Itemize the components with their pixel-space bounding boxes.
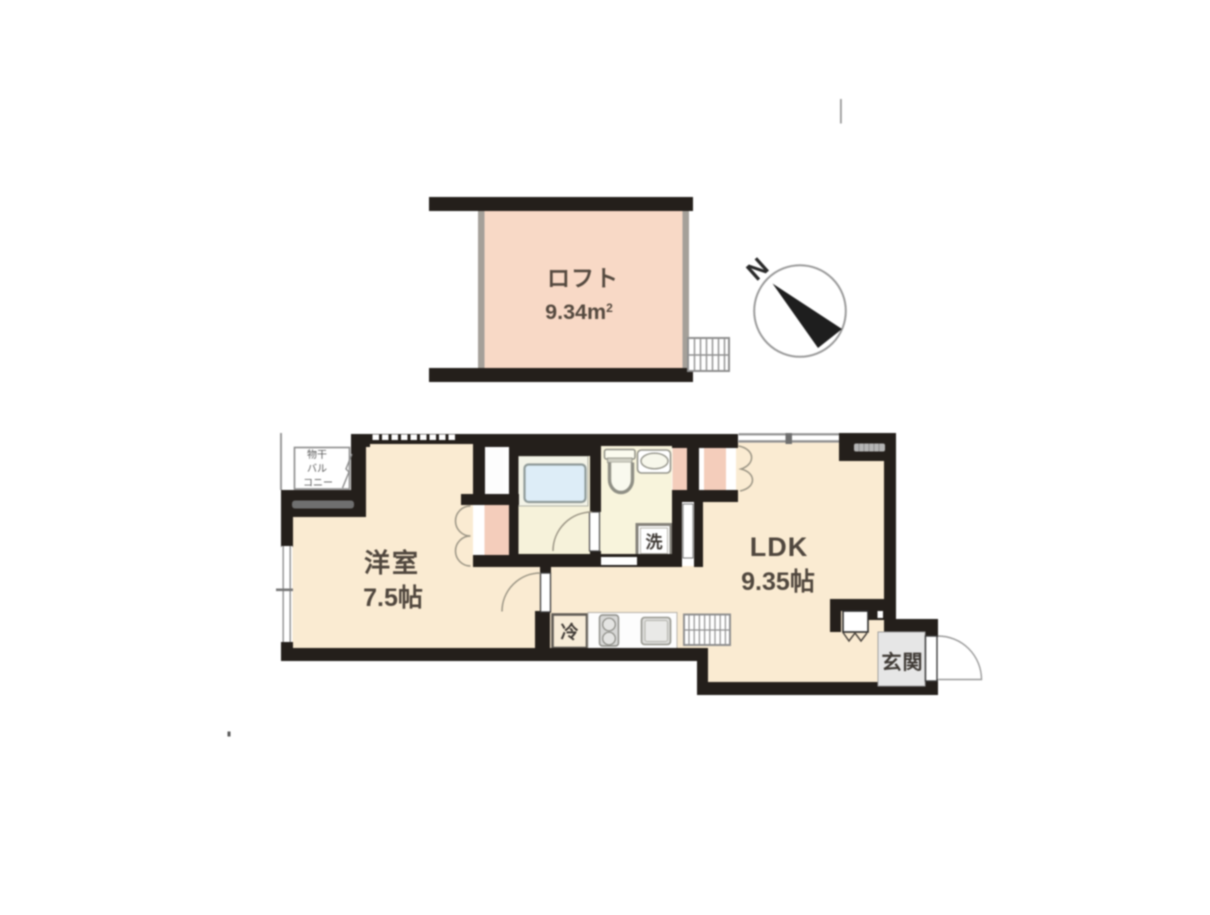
- svg-text:7.5帖: 7.5帖: [363, 584, 423, 612]
- svg-text:ロフト: ロフト: [547, 265, 619, 291]
- svg-text:9.35帖: 9.35帖: [741, 568, 815, 596]
- svg-text:物干: 物干: [307, 448, 327, 461]
- svg-text:冷: 冷: [561, 622, 579, 643]
- svg-text:洗: 洗: [646, 532, 663, 552]
- svg-text:コニー: コニー: [303, 478, 333, 489]
- svg-text:9.34m2: 9.34m2: [545, 300, 613, 324]
- svg-text:玄関: 玄関: [882, 650, 924, 674]
- svg-text:洋室: 洋室: [364, 548, 420, 578]
- svg-text:バル: バル: [307, 463, 327, 475]
- svg-text:LDK: LDK: [750, 532, 809, 562]
